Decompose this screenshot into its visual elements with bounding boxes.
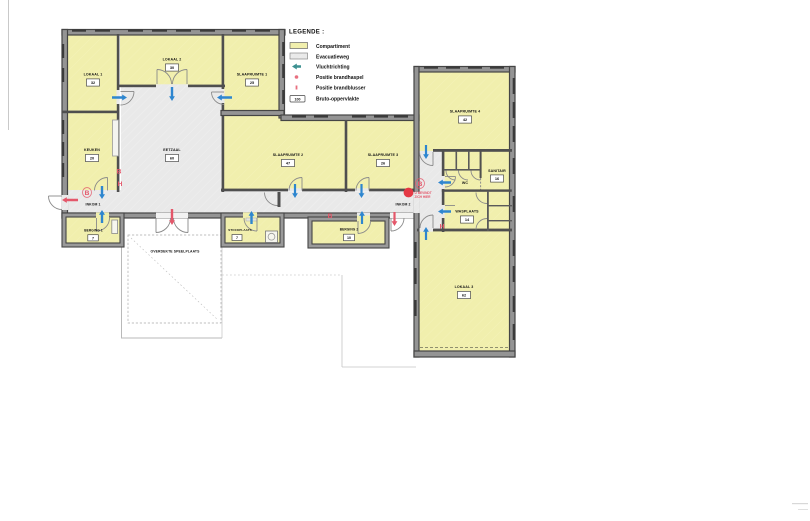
svg-text:Compartiment: Compartiment bbox=[316, 44, 350, 50]
svg-text:H: H bbox=[118, 181, 123, 188]
svg-text:LOKAAL 3: LOKAAL 3 bbox=[455, 285, 474, 289]
svg-text:OVERDEKTE SPEELPLAATS: OVERDEKTE SPEELPLAATS bbox=[151, 250, 201, 254]
svg-text:100: 100 bbox=[295, 98, 301, 102]
svg-text:STOCKPLAATS: STOCKPLAATS bbox=[228, 228, 252, 232]
svg-text:Positie brandblusser: Positie brandblusser bbox=[316, 86, 366, 92]
svg-text:LEGENDE :: LEGENDE : bbox=[289, 30, 324, 36]
svg-text:B: B bbox=[85, 190, 90, 197]
svg-text:B: B bbox=[418, 181, 423, 188]
svg-text:SLAAPRUIMTE 1: SLAAPRUIMTE 1 bbox=[237, 73, 268, 77]
svg-text:SANITAIR: SANITAIR bbox=[488, 169, 506, 173]
svg-text:B: B bbox=[117, 168, 122, 175]
svg-text:Positie brandhaspel: Positie brandhaspel bbox=[316, 75, 364, 81]
svg-text:SLAAPRUIMTE 2: SLAAPRUIMTE 2 bbox=[273, 153, 304, 157]
svg-text:20: 20 bbox=[90, 156, 94, 161]
svg-text:Bruto-oppervlakte: Bruto-oppervlakte bbox=[316, 97, 359, 103]
svg-text:SLAAPRUIMTE 4: SLAAPRUIMTE 4 bbox=[450, 110, 481, 114]
svg-text:SLAAPRUIMTE 3: SLAAPRUIMTE 3 bbox=[368, 153, 399, 157]
svg-text:LOKAAL 1: LOKAAL 1 bbox=[84, 73, 103, 77]
svg-text:B: B bbox=[328, 213, 333, 220]
svg-text:WC: WC bbox=[462, 181, 469, 185]
svg-text:60: 60 bbox=[170, 156, 174, 161]
svg-text:Vluchtrichting: Vluchtrichting bbox=[316, 65, 350, 71]
svg-text:7: 7 bbox=[92, 236, 94, 240]
svg-text:47: 47 bbox=[286, 161, 290, 166]
svg-text:BERGING 1: BERGING 1 bbox=[84, 229, 103, 233]
svg-text:Evacuatieweg: Evacuatieweg bbox=[316, 54, 349, 60]
svg-text:INKOM 1: INKOM 1 bbox=[86, 203, 101, 207]
svg-text:7: 7 bbox=[236, 236, 238, 240]
svg-text:INKOM 2: INKOM 2 bbox=[396, 203, 411, 207]
svg-text:10: 10 bbox=[347, 236, 351, 240]
svg-text:BERGING 2: BERGING 2 bbox=[340, 228, 359, 232]
svg-text:30: 30 bbox=[170, 65, 174, 70]
svg-text:KEUKEN: KEUKEN bbox=[84, 148, 100, 152]
svg-text:WASPLAATS: WASPLAATS bbox=[455, 210, 479, 214]
svg-text:ZICH HIER: ZICH HIER bbox=[415, 195, 432, 199]
svg-text:LOKAAL 2: LOKAAL 2 bbox=[163, 58, 182, 62]
svg-text:EETZAAL: EETZAAL bbox=[163, 148, 181, 152]
svg-text:H: H bbox=[440, 223, 445, 230]
